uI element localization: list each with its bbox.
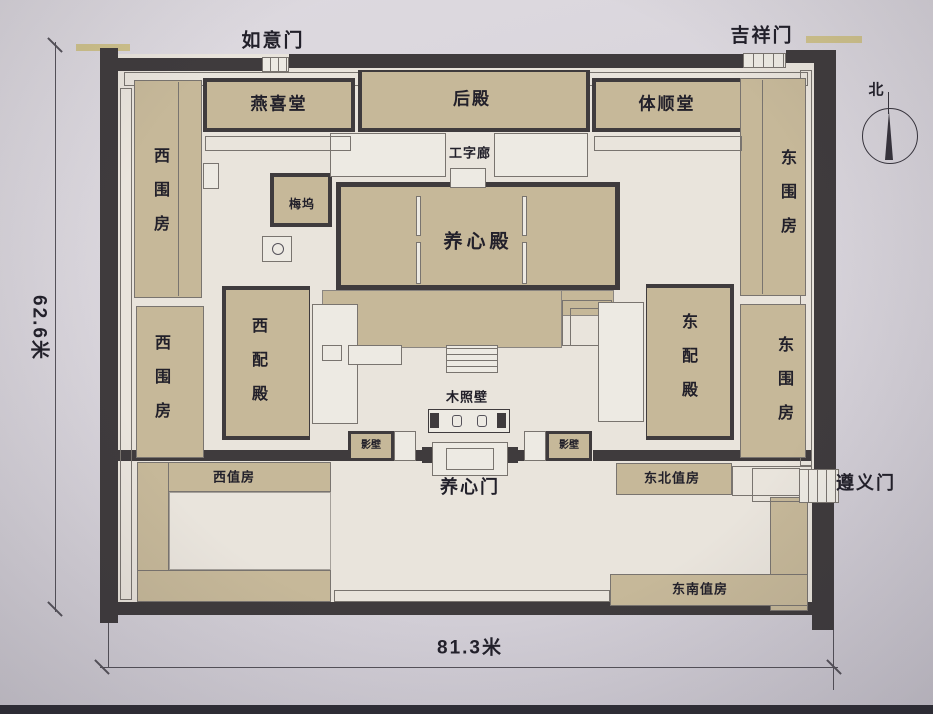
ruyi-gate [262,57,289,72]
wall-east-lower [812,503,834,630]
label-xizhifang: 西值房 [213,471,255,484]
muzhaobi-end-west [430,413,439,428]
gongzilang-corridor [450,168,486,188]
xizhifang-court-outline [169,492,331,570]
label-jixiangmen: 吉祥门 [730,27,793,46]
terrace-steps-center [446,345,498,373]
dimension-width-line [100,667,838,668]
stove-circle-icon [272,243,284,255]
label-yingbi-west: 影壁 [361,441,381,451]
column-mark [522,196,527,236]
yangxindian-terrace [322,290,562,348]
wall-north-left [112,58,262,71]
wall-east-upper [814,50,836,470]
tishuntang-colonnade [594,136,742,151]
column-mark [416,196,421,236]
muzhaobi-ring-icon [477,415,487,427]
wall-accent-northeast [806,36,862,43]
hall-dongweifang-lower [740,304,806,458]
label-ruyimen: 如意门 [241,32,304,51]
label-xipeidian: 西配殿 [249,317,265,419]
label-xiweifang-upper: 西围房 [151,147,167,249]
dimension-height-line [55,42,56,612]
label-yanxitang: 燕喜堂 [251,96,308,113]
label-zunyimen: 遵义门 [836,474,896,492]
hall-xipeidian [222,286,310,440]
label-dongpeidian: 东配殿 [679,313,695,415]
hall-xiweifang-upper [134,80,202,298]
compass-north-label: 北 [868,83,883,98]
zunyimen-gate [799,469,839,503]
dongweifang-divider [762,80,763,294]
label-yangxindian: 养心殿 [443,233,512,252]
label-yangxinmen: 养心门 [440,478,500,496]
jixiang-gate [743,53,786,68]
wall-north-middle [289,54,743,68]
floor-plan-photo: 62.6米 81.3米 北 [0,0,933,714]
dongpeidian-porch [598,302,644,422]
label-dongweifang-upper: 东围房 [778,149,794,251]
label-meiwu: 梅坞 [289,198,315,210]
dimension-height-label: 62.6米 [30,295,49,361]
hall-dongweifang-upper [740,78,806,296]
yingbi-east-porch [524,431,546,461]
hall-xizhifang-south [137,570,331,602]
zunyimen-porch [752,468,800,502]
compass-needle [885,111,893,160]
label-tishuntang: 体顺堂 [639,96,696,113]
terrace-steps-west [348,345,402,365]
yangxinmen-gate-inner [446,448,494,470]
xiweifang-divider [178,82,179,296]
yingbi-west-porch [394,431,416,461]
label-xiweifang-lower: 西围房 [152,334,168,436]
gallery-west [120,88,132,600]
wall-west [100,48,118,623]
muzhaobi-ring-icon [452,415,462,427]
terrace-steps-stub [322,345,342,361]
label-dongnanzhifang: 东南值房 [672,583,728,596]
dimension-extension-right [833,628,834,690]
label-muzhaobi: 木照壁 [446,391,488,404]
label-yingbi-east: 影壁 [559,441,579,451]
hall-xiweifang-lower [136,306,204,458]
muzhaobi-end-east [497,413,506,428]
column-mark [416,242,421,284]
label-dongweifang-lower: 东围房 [775,336,791,438]
dimension-extension-left [108,617,109,667]
label-houdian: 后殿 [453,91,491,108]
houdian-east-porch [494,133,588,177]
label-dongbeizhifang: 东北值房 [644,472,700,485]
column-mark [522,242,527,284]
dimension-width-label: 81.3米 [437,639,503,658]
step-motif-west [203,163,219,189]
photo-edge-shadow [0,705,933,714]
label-gongzilang: 工字廊 [449,147,491,160]
yanxitang-colonnade [205,136,351,151]
gallery-south [334,590,610,602]
